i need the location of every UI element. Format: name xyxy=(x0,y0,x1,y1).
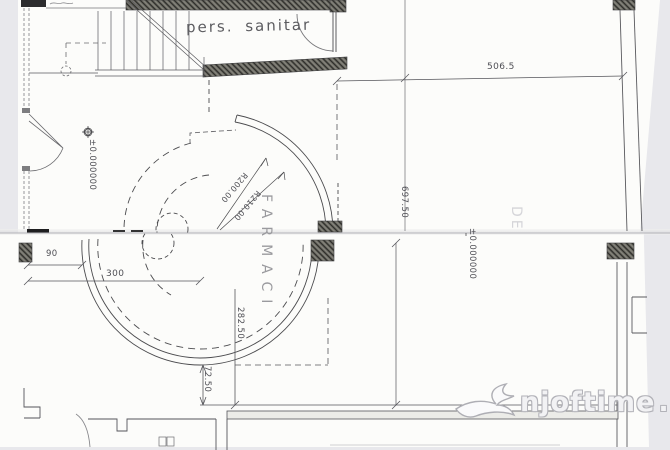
hatched-pier-right xyxy=(607,243,634,259)
level-label-left: ±0.000000 xyxy=(87,139,97,190)
wall-bracket xyxy=(632,297,647,333)
hatched-pier xyxy=(311,240,334,261)
door-leaf xyxy=(29,114,63,148)
door-swing-arc xyxy=(76,414,90,447)
entrance-door xyxy=(29,114,63,171)
wall-corner-block xyxy=(21,0,46,7)
watermark-separator: . xyxy=(658,387,669,418)
circular-wall-lower xyxy=(19,227,334,365)
dimension-label-282-50: 282.50 xyxy=(235,307,245,339)
wall-block-seam xyxy=(27,229,49,233)
hatched-pier-left xyxy=(19,243,32,262)
hatched-wall-top xyxy=(126,0,346,12)
circular-wall-upper xyxy=(124,80,342,245)
dimension-top-width xyxy=(333,72,627,160)
hatched-wall-corridor-bottom xyxy=(203,57,347,77)
floorplan-scan: pers. sanitar 506.5 697.50 282.50 72.50 … xyxy=(0,0,670,450)
watermark: njoftime . al xyxy=(454,381,670,423)
area-label-farmaci: FARMACI xyxy=(258,194,274,311)
floor-fixture xyxy=(167,437,174,446)
hatched-pier-top-right xyxy=(613,0,635,10)
dimension-label-72-50: 72.50 xyxy=(202,366,212,392)
dimension-label-90: 90 xyxy=(46,249,58,259)
dimension-label-300: 300 xyxy=(106,269,124,279)
handwritten-note xyxy=(50,3,73,4)
faint-label-de: DE xyxy=(508,206,524,232)
level-label-right: ±0.000000 xyxy=(467,228,477,279)
watermark-brand: njoftime xyxy=(520,387,655,418)
left-wall xyxy=(24,8,29,231)
watermark-bird-icon xyxy=(454,381,518,423)
door-swing-arc xyxy=(30,148,63,171)
level-marker-icon xyxy=(82,126,94,138)
dimension-label-506-5: 506.5 xyxy=(487,62,515,72)
staircase xyxy=(29,1,207,77)
hatched-pier xyxy=(318,221,342,232)
grid-marker xyxy=(61,43,106,76)
dashed-arc-outer xyxy=(124,143,191,232)
room-label-pers-sanitar: pers. sanitar xyxy=(186,16,312,37)
dimension-label-697-50: 697.50 xyxy=(399,186,409,218)
floor-fixture xyxy=(159,437,166,446)
dashed-arc-inner xyxy=(157,175,209,233)
dashed-column-circle xyxy=(156,213,188,245)
right-wall-upper xyxy=(620,10,642,231)
